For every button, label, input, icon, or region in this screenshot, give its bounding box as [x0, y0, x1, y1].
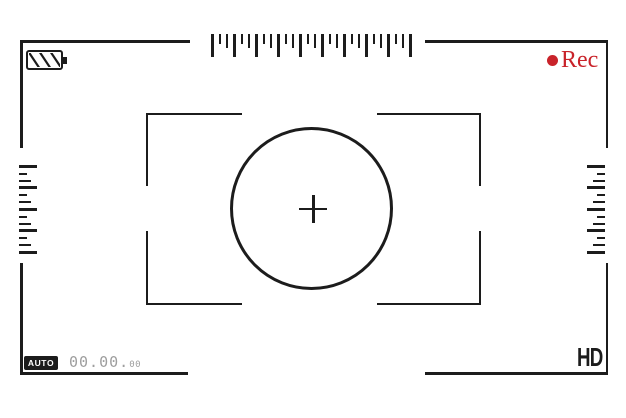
left-ruler-tick	[19, 173, 27, 175]
top-ruler-tick	[336, 34, 338, 48]
top-ruler-tick	[226, 34, 228, 48]
left-ruler-tick	[19, 223, 31, 225]
left-ruler-tick	[19, 165, 37, 168]
top-ruler-tick	[263, 34, 265, 44]
rec-indicator[interactable]: Rec	[547, 46, 598, 74]
top-ruler-tick	[343, 34, 346, 57]
left-ruler-tick	[19, 244, 31, 246]
top-ruler-tick	[395, 34, 397, 44]
counter-frames: 00	[129, 360, 141, 370]
focus-bracket-bottom-left	[146, 303, 242, 305]
left-ruler-tick	[19, 201, 31, 203]
left-ruler-tick	[19, 180, 31, 182]
right-ruler-tick	[597, 237, 605, 239]
left-ruler-tick	[19, 186, 37, 189]
right-ruler-tick	[587, 186, 605, 189]
right-ruler-tick	[593, 244, 605, 246]
right-ruler-tick	[587, 208, 605, 211]
focus-bracket-right-upper	[479, 113, 481, 186]
top-ruler-tick	[373, 34, 375, 44]
auto-mode-badge[interactable]: AUTO	[24, 356, 58, 370]
top-ruler-tick	[380, 34, 382, 48]
frame-bottom-right-horizontal	[425, 372, 608, 375]
right-ruler-tick	[597, 216, 605, 218]
right-ruler-tick	[593, 180, 605, 182]
top-ruler-tick	[299, 34, 302, 57]
frame-left-vertical-bottom	[20, 263, 23, 375]
counter-separator: .	[119, 353, 129, 371]
focus-bracket-left-lower	[146, 231, 148, 305]
top-ruler-tick	[387, 34, 390, 57]
top-ruler-tick	[219, 34, 221, 44]
hd-quality-label[interactable]: HD	[577, 344, 603, 370]
top-ruler-tick	[402, 34, 404, 48]
frame-right-vertical-bottom	[606, 263, 609, 375]
battery-icon	[26, 50, 68, 71]
left-ruler-tick	[19, 251, 37, 254]
left-ruler-tick	[19, 237, 27, 239]
counter-main: 00.00	[69, 353, 119, 371]
right-ruler	[587, 165, 605, 254]
top-ruler-tick	[358, 34, 360, 48]
left-ruler-tick	[19, 208, 37, 211]
right-ruler-tick	[597, 194, 605, 196]
top-ruler-tick	[270, 34, 272, 48]
top-ruler-tick	[285, 34, 287, 44]
focus-bracket-top-right	[377, 113, 481, 115]
frame-right-vertical-top	[606, 40, 609, 148]
camera-viewfinder: Rec AUTO 00.00.00 HD	[0, 0, 626, 418]
top-ruler-tick	[351, 34, 353, 44]
focus-bracket-bottom-right	[377, 303, 481, 305]
right-ruler-tick	[593, 223, 605, 225]
right-ruler-tick	[593, 201, 605, 203]
left-ruler-tick	[19, 216, 27, 218]
focus-bracket-top-left	[146, 113, 242, 115]
right-ruler-tick	[597, 173, 605, 175]
top-ruler-tick	[292, 34, 294, 48]
top-ruler-tick	[314, 34, 316, 48]
focus-bracket-left-upper	[146, 113, 148, 186]
right-ruler-tick	[587, 251, 605, 254]
top-ruler-tick	[329, 34, 331, 44]
left-ruler-tick	[19, 229, 37, 232]
top-ruler	[211, 34, 412, 58]
crosshair-icon	[312, 195, 315, 224]
right-ruler-tick	[587, 165, 605, 168]
recording-counter: 00.00.00	[69, 353, 141, 374]
auto-mode-label: AUTO	[28, 359, 54, 368]
left-ruler-tick	[19, 194, 27, 196]
top-ruler-tick	[255, 34, 258, 57]
left-ruler	[19, 165, 37, 254]
top-ruler-tick	[277, 34, 280, 57]
top-ruler-tick	[233, 34, 236, 57]
rec-dot-icon	[547, 55, 558, 66]
top-ruler-tick	[241, 34, 243, 44]
top-ruler-tick	[307, 34, 309, 44]
right-ruler-tick	[587, 229, 605, 232]
focus-bracket-right-lower	[479, 231, 481, 305]
top-ruler-tick	[409, 34, 412, 57]
frame-top-left-horizontal	[20, 40, 190, 43]
top-ruler-tick	[321, 34, 324, 57]
top-ruler-tick	[211, 34, 214, 57]
top-ruler-tick	[248, 34, 250, 48]
frame-left-vertical-top	[20, 40, 23, 148]
frame-top-right-horizontal	[425, 40, 608, 43]
rec-label: Rec	[561, 46, 598, 74]
top-ruler-tick	[365, 34, 368, 57]
